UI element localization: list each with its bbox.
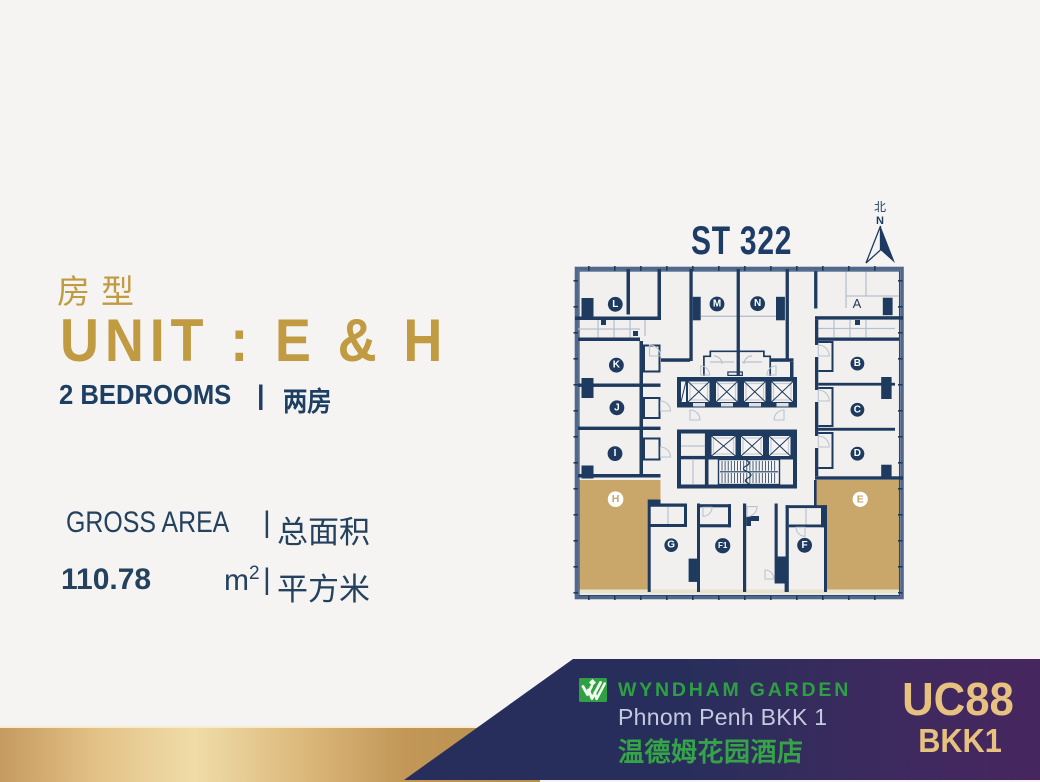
svg-text:A: A xyxy=(853,296,862,311)
svg-text:F: F xyxy=(802,540,808,551)
svg-text:B: B xyxy=(854,358,861,369)
svg-text:J: J xyxy=(614,402,620,413)
svg-text:M: M xyxy=(713,299,721,310)
svg-text:F1: F1 xyxy=(718,541,728,550)
svg-text:N: N xyxy=(876,215,884,227)
svg-text:K: K xyxy=(613,360,621,371)
svg-text:I: I xyxy=(614,448,617,459)
svg-text:E: E xyxy=(857,493,864,505)
svg-text:北: 北 xyxy=(874,200,886,214)
svg-text:H: H xyxy=(612,493,620,505)
svg-text:G: G xyxy=(667,540,675,551)
svg-text:N: N xyxy=(754,298,761,309)
svg-text:D: D xyxy=(854,448,861,459)
svg-text:L: L xyxy=(612,299,618,310)
svg-text:C: C xyxy=(854,404,861,415)
